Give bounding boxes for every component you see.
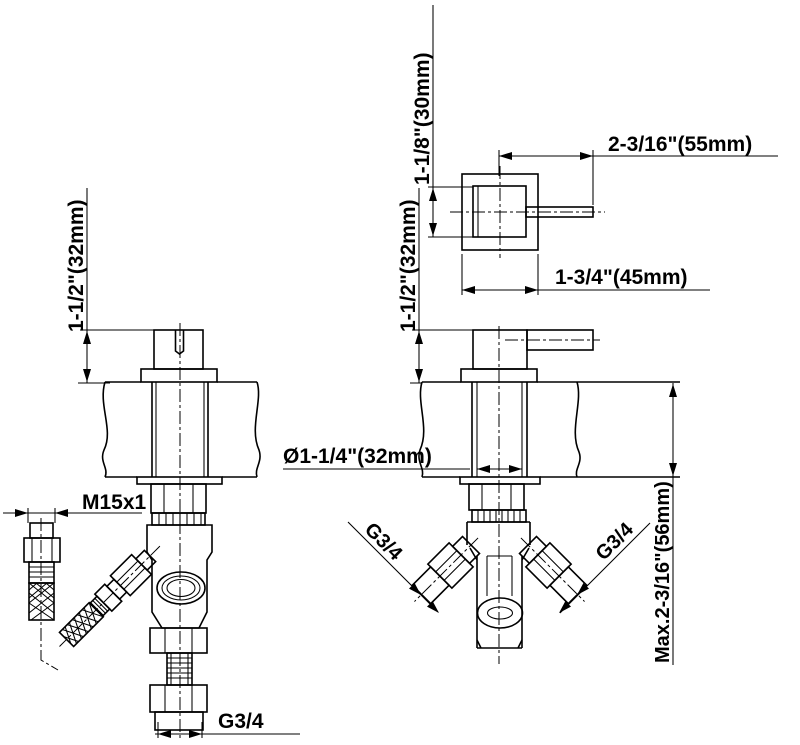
- label-escutcheon-width: 1-3/4"(45mm): [555, 266, 688, 289]
- wall-section: [103, 382, 260, 477]
- dim-projection-left: 1-1/2"(32mm): [65, 188, 155, 383]
- label-projection-left: 1-1/2"(32mm): [65, 199, 88, 332]
- front-port-right-inner: [488, 607, 513, 619]
- top-view: [450, 166, 605, 258]
- ribbed-collar: [152, 513, 205, 525]
- m15-fitting: [24, 518, 60, 670]
- backing-flange-right: [460, 477, 540, 484]
- label-max-wall-thickness: Max.2-3/16"(56mm): [652, 481, 674, 663]
- dim-body-diameter: Ø1-1/4"(32mm): [283, 445, 522, 473]
- valve-installation-diagram: M15x1 1-1/2"(32mm) G3/4 1-1/8"(30mm): [0, 0, 800, 745]
- hex-nut-right: [469, 484, 524, 510]
- dim-lever-length: 2-3/16"(55mm): [499, 133, 778, 205]
- label-inlet-thread: M15x1: [82, 491, 147, 514]
- front-port-outer: [157, 572, 205, 604]
- escutcheon: [141, 369, 217, 382]
- label-handle-base-height: 1-1/8"(30mm): [411, 52, 434, 185]
- hex-nut-mid: [150, 628, 207, 653]
- left-front-view: [50, 323, 260, 738]
- label-left-outlet-thread: G3/4: [360, 519, 407, 566]
- front-port-right-outer: [478, 598, 523, 628]
- wall-break-right: [575, 382, 580, 477]
- dim-left-outlet: G3/4: [348, 519, 439, 613]
- dim-max-wall-thickness: Max.2-3/16"(56mm): [652, 383, 677, 665]
- dim-inlet-thread: M15x1: [3, 491, 147, 523]
- hex-nut-lower: [150, 685, 207, 712]
- front-port-inner: [167, 580, 195, 597]
- label-bottom-outlet-thread: G3/4: [218, 710, 264, 733]
- bottom-outlet: [155, 712, 203, 730]
- hex-nut-upper: [151, 484, 206, 513]
- label-lever-length: 2-3/16"(55mm): [608, 133, 752, 156]
- handle-knob: [154, 330, 203, 369]
- wall-section-right: [419, 382, 680, 477]
- dim-bottom-outlet: G3/4: [155, 710, 300, 738]
- technical-drawing: M15x1 1-1/2"(32mm) G3/4 1-1/8"(30mm): [0, 0, 800, 745]
- right-front-view: [402, 326, 680, 664]
- label-projection-right: 1-1/2"(32mm): [397, 199, 420, 332]
- dim-handle-base-height: 1-1/8"(30mm): [411, 5, 473, 237]
- dim-escutcheon-width: 1-3/4"(45mm): [462, 254, 710, 295]
- wall-break-right: [255, 382, 260, 477]
- label-body-diameter: Ø1-1/4"(32mm): [283, 445, 432, 468]
- wall-break-left: [103, 382, 108, 477]
- handle-knob-right: [473, 330, 527, 369]
